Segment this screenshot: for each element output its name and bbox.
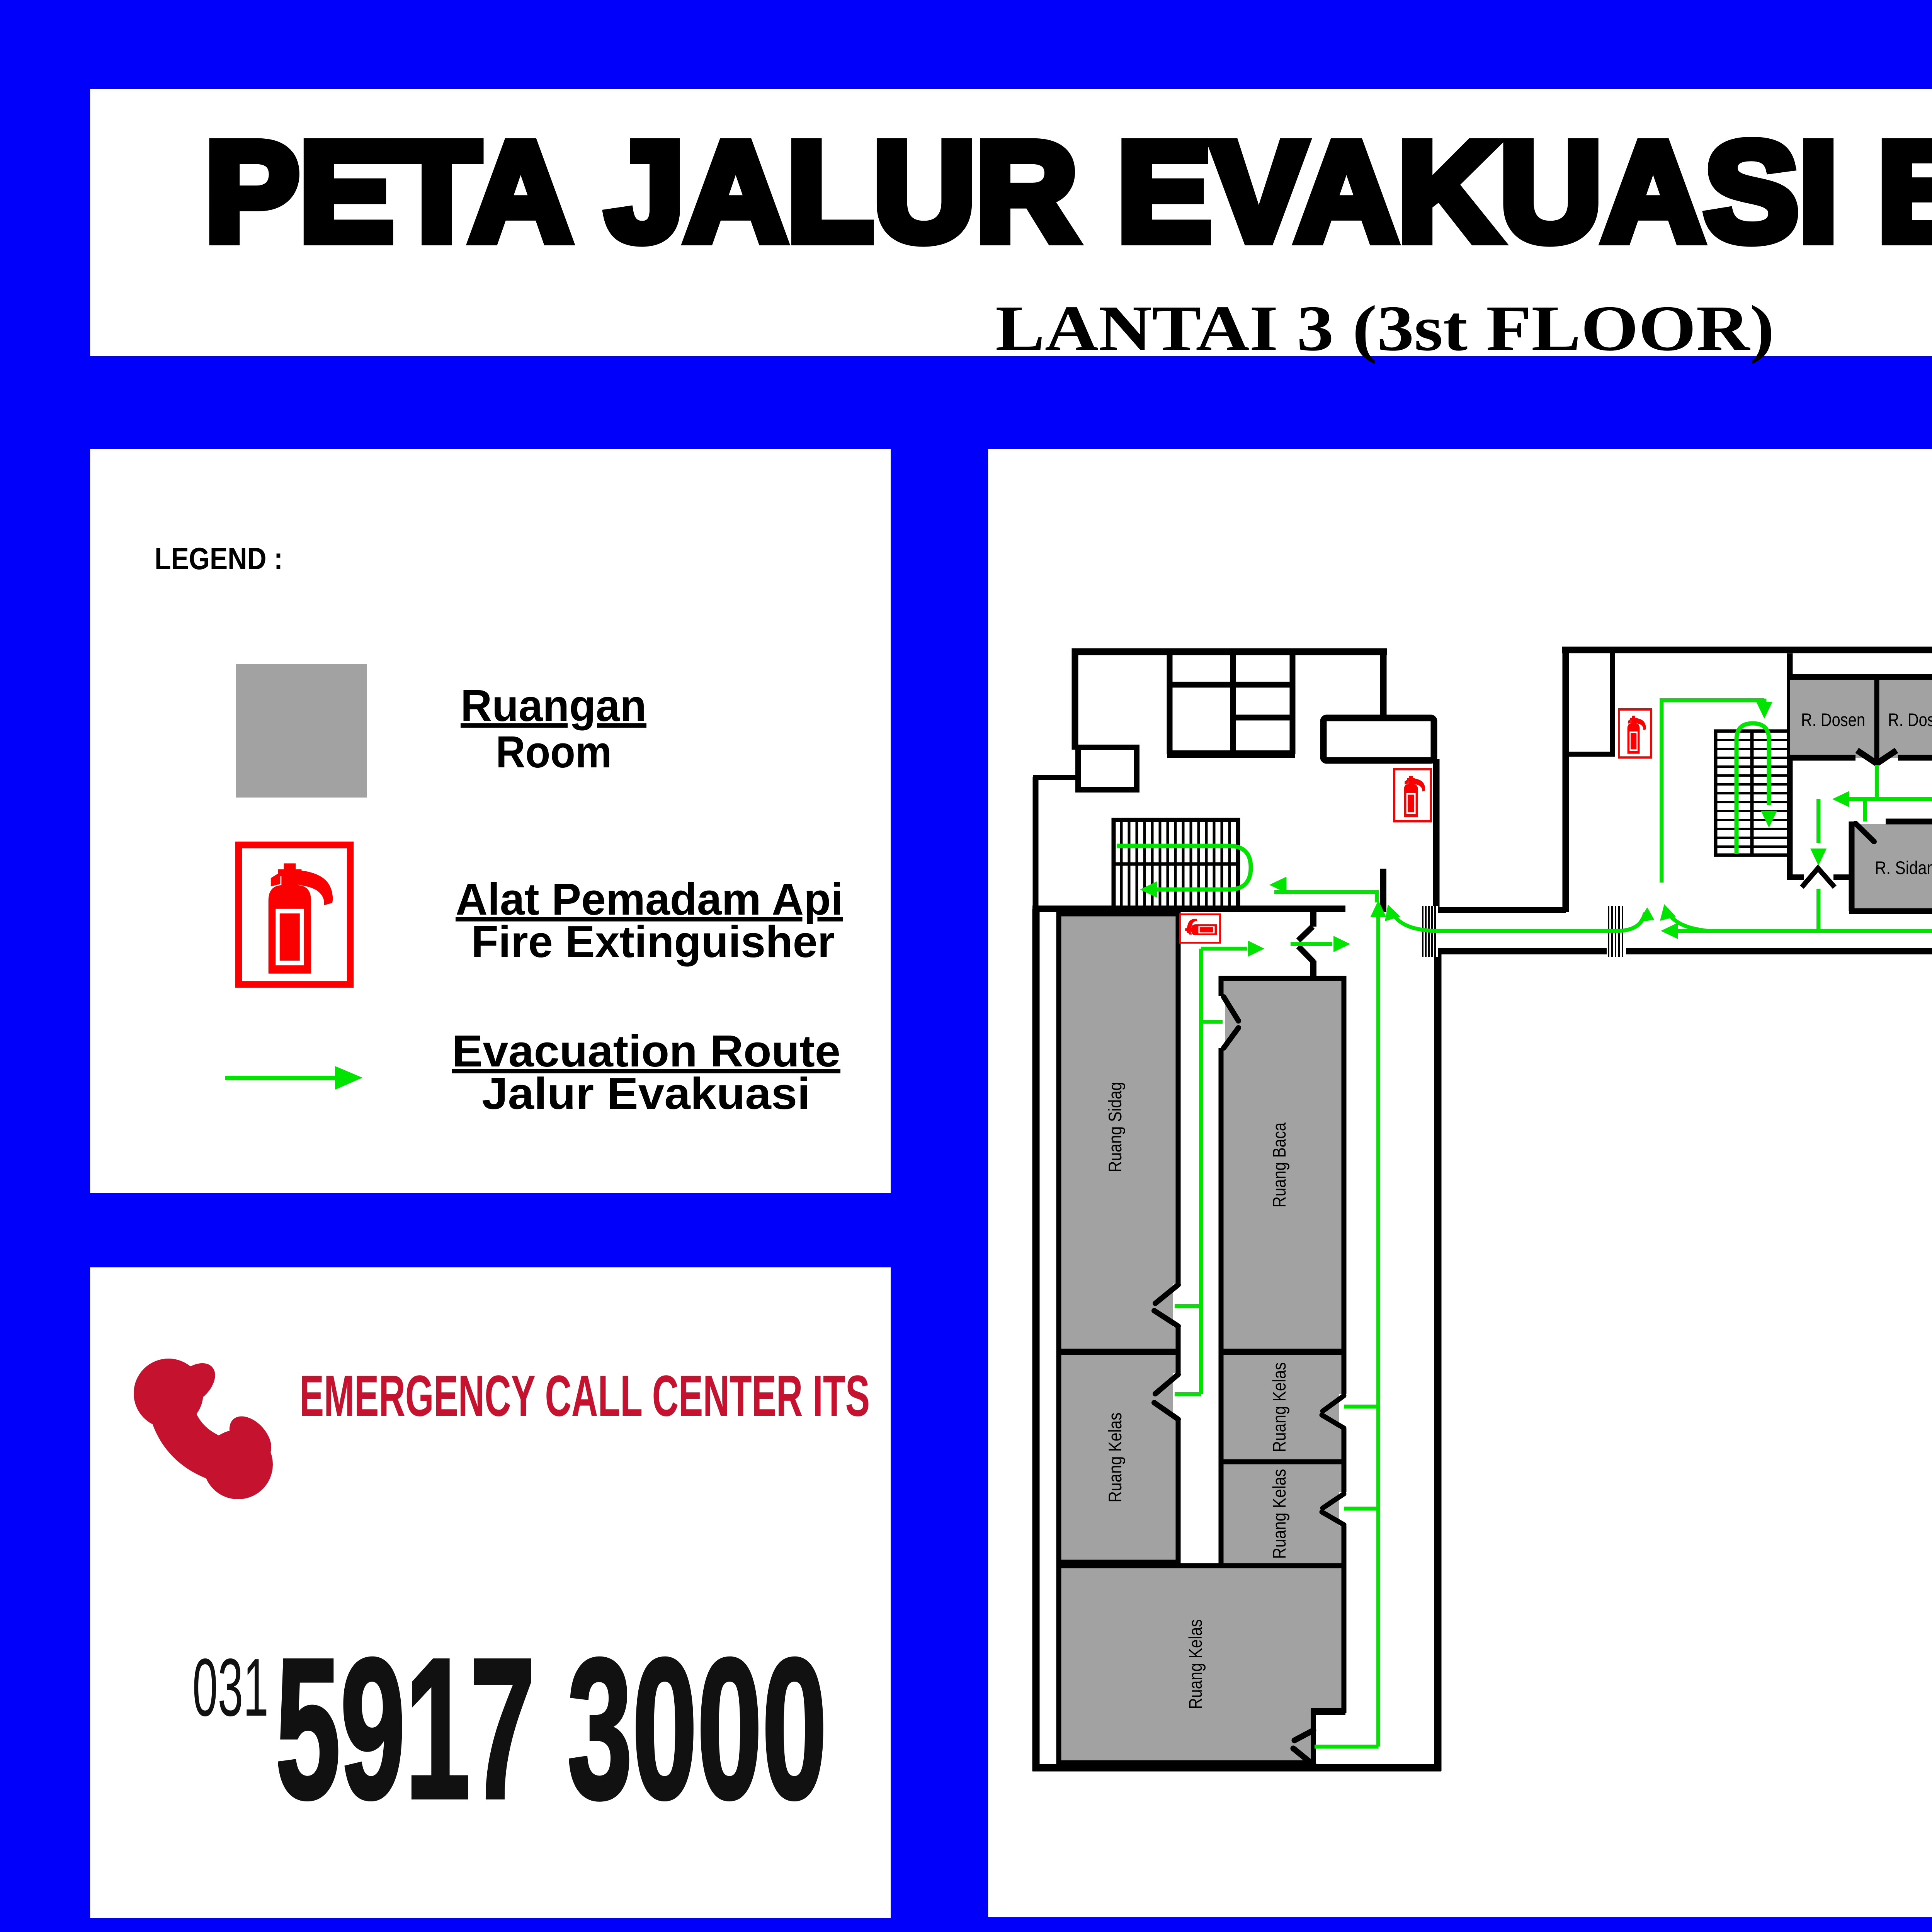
svg-text:Ruangan: Ruangan — [461, 680, 646, 731]
svg-text:LANTAI 3 (3st FLOOR): LANTAI 3 (3st FLOOR) — [995, 293, 1774, 364]
svg-text:R. Dosen: R. Dosen — [1801, 709, 1865, 730]
svg-text:LEGEND :: LEGEND : — [155, 541, 283, 576]
svg-text:Room: Room — [496, 727, 612, 777]
svg-text:5917 3000: 5917 3000 — [276, 1617, 827, 1840]
svg-text:Fire Extinguisher: Fire Extinguisher — [471, 917, 835, 967]
svg-text:Ruang Kelas: Ruang Kelas — [1269, 1469, 1289, 1559]
svg-text:Ruang Kelas: Ruang Kelas — [1105, 1413, 1125, 1503]
svg-text:031: 031 — [192, 1641, 269, 1733]
svg-text:Ruang Baca: Ruang Baca — [1269, 1122, 1289, 1207]
svg-text:R. Sidang: R. Sidang — [1875, 857, 1932, 878]
svg-text:EMERGENCY CALL CENTER ITS: EMERGENCY CALL CENTER ITS — [299, 1363, 870, 1428]
svg-text:PETA JALUR EVAKUASI BENCANA: PETA JALUR EVAKUASI BENCANA — [205, 113, 1932, 270]
svg-text:Ruang Kelas: Ruang Kelas — [1269, 1362, 1289, 1452]
svg-text:Ruang Sidag: Ruang Sidag — [1105, 1082, 1125, 1172]
svg-text:R. Dosen: R. Dosen — [1888, 709, 1932, 730]
svg-text:Ruang Kelas: Ruang Kelas — [1185, 1619, 1206, 1709]
svg-text:Jalur Evakuasi: Jalur Evakuasi — [482, 1068, 810, 1119]
